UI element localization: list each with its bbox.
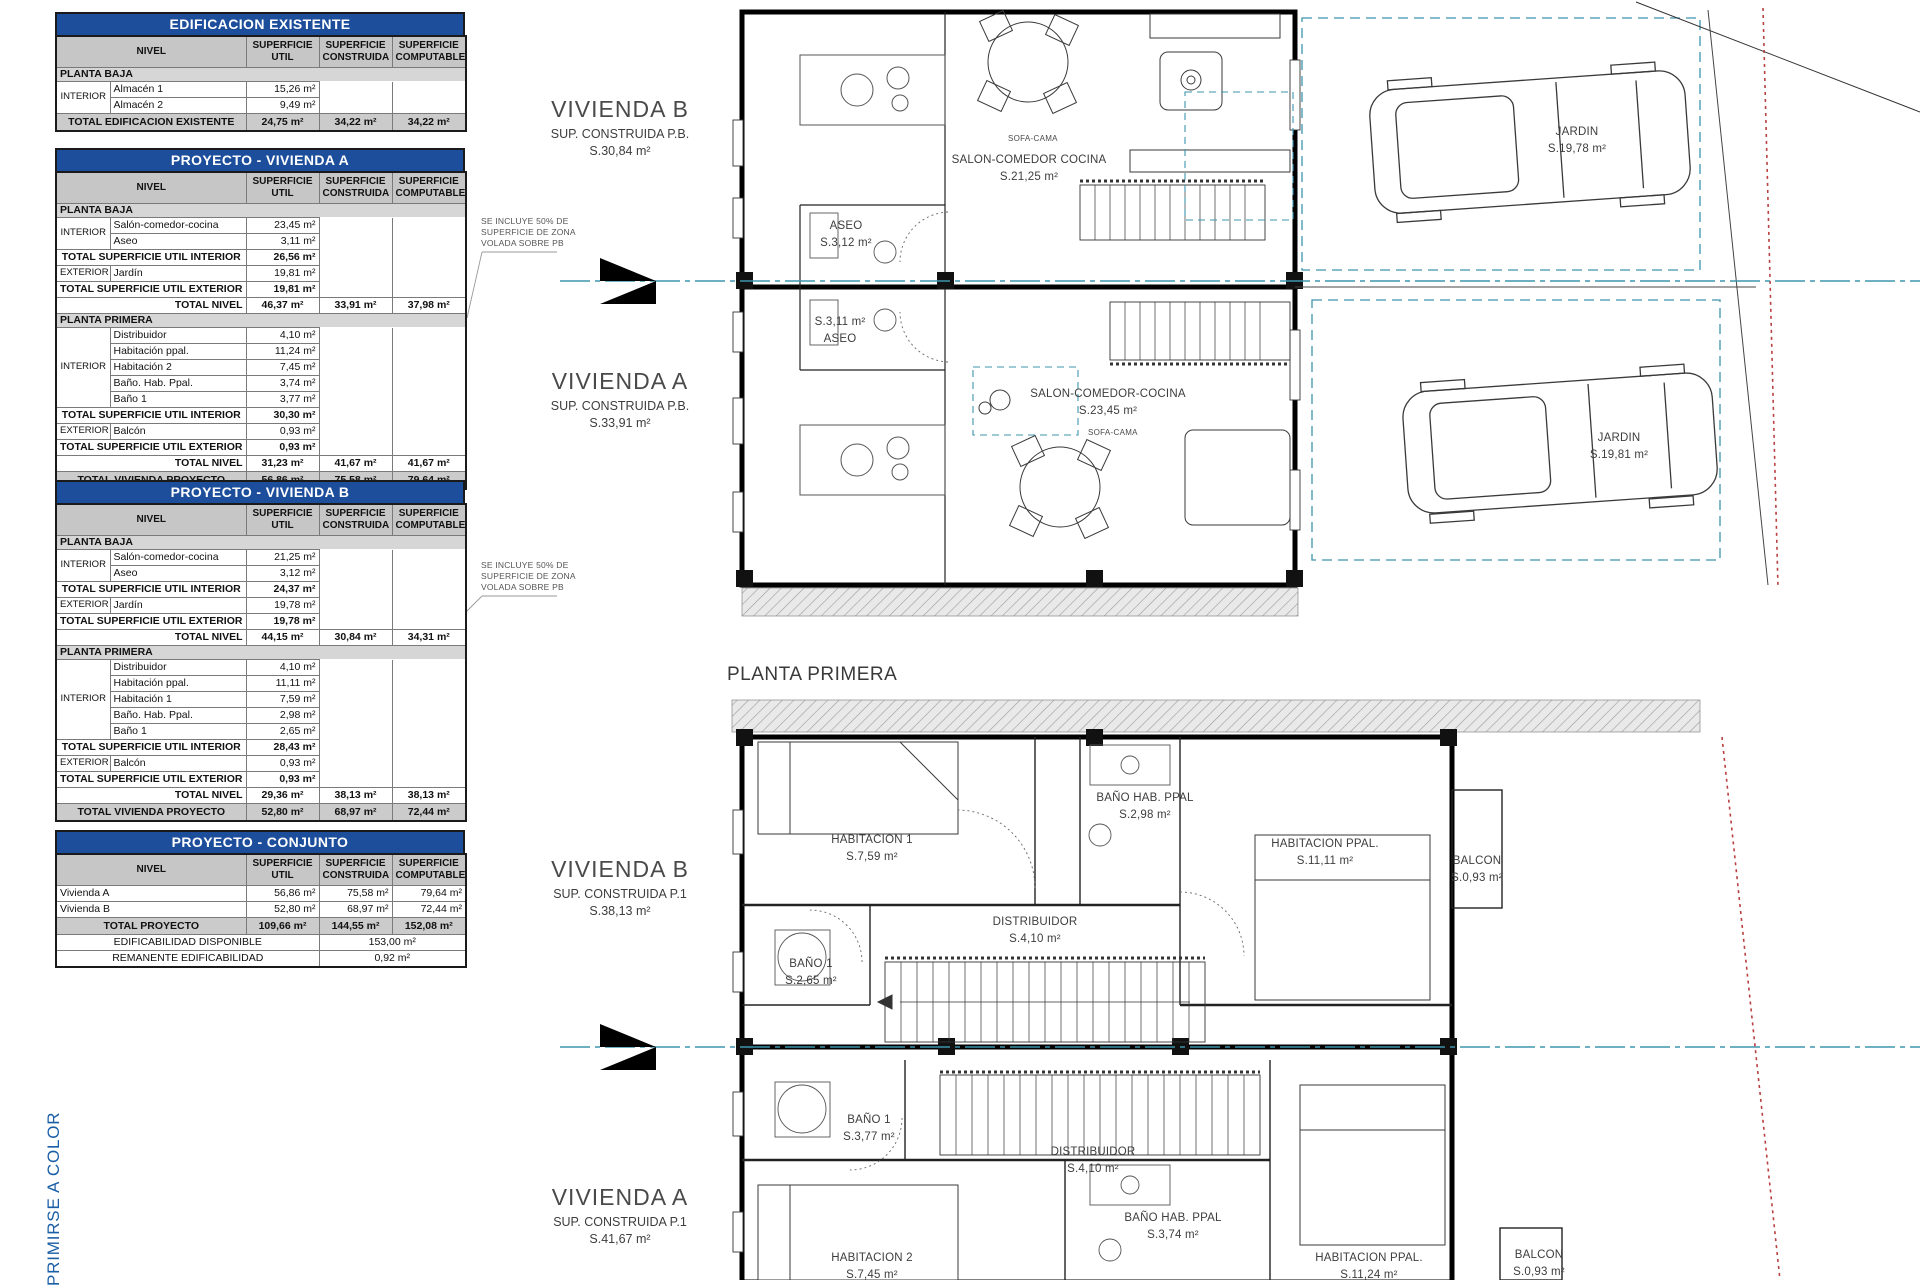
table-cell: 0,93 m²	[246, 424, 319, 440]
table-cell	[392, 250, 466, 266]
table-cell: 9,49 m²	[246, 98, 319, 114]
table-cell: Salón-comedor-cocina	[110, 550, 246, 566]
room-label-banyo-ppal-a: BAÑO HAB. PPALS.3,74 m²	[1073, 1210, 1273, 1245]
table-cell: Jardín	[110, 598, 246, 614]
table-cell: 2,65 m²	[246, 724, 319, 740]
table-cell: 52,80 m²	[246, 804, 319, 822]
table-row: Aseo3,12 m²	[56, 566, 466, 582]
section-cut-mark	[600, 1024, 656, 1070]
table-cell: REMANENTE EDIFICABILIDAD	[56, 951, 319, 968]
table-proyecto-vivienda-a: PROYECTO - VIVIENDA A NIVELSUPERFICIE UT…	[55, 148, 465, 490]
room-label-banyo1-b: BAÑO 1S.2,65 m²	[746, 956, 876, 991]
room-label-balcon-b: BALCONS.0,93 m²	[1422, 853, 1532, 888]
table-cell: PLANTA PRIMERA	[56, 646, 466, 660]
unit-label-vivienda-b-p1: VIVIENDA B SUP. CONSTRUIDA P.1S.38,13 m²	[520, 856, 720, 920]
table-cell: TOTAL SUPERFICIE UTIL INTERIOR	[56, 740, 246, 756]
table-cell	[319, 614, 392, 630]
table-cell: 72,44 m²	[392, 804, 466, 822]
table-cell: 23,45 m²	[246, 218, 319, 234]
table-row: TOTAL SUPERFICIE UTIL INTERIOR30,30 m²	[56, 408, 466, 424]
table-cell	[392, 440, 466, 456]
margin-print-note: PRIMIRSE A COLOR	[44, 956, 64, 1286]
facade-windows	[733, 60, 1300, 532]
note-leader-lines	[466, 252, 557, 612]
table-cell: Balcón	[110, 424, 246, 440]
area-table: NIVELSUPERFICIE UTILSUPERFICIE CONSTRUID…	[55, 35, 467, 132]
table-cell: Balcón	[110, 756, 246, 772]
table-cell	[319, 360, 392, 376]
table-cell: Almacén 2	[110, 98, 246, 114]
table-cell	[392, 408, 466, 424]
room-label-banyo1-a: BAÑO 1S.3,77 m²	[804, 1112, 934, 1147]
table-cell: 24,37 m²	[246, 582, 319, 598]
table-cell: 19,81 m²	[246, 282, 319, 298]
table-cell: 34,22 m²	[392, 114, 466, 132]
table-cell	[392, 376, 466, 392]
table-cell: TOTAL SUPERFICIE UTIL EXTERIOR	[56, 772, 246, 788]
section-cut-mark	[600, 258, 656, 304]
column-header: NIVEL	[56, 36, 246, 68]
table-cell	[319, 250, 392, 266]
table-cell	[319, 756, 392, 772]
table-cell	[392, 266, 466, 282]
table-cell	[392, 724, 466, 740]
table-cell: 68,97 m²	[319, 902, 392, 918]
table-cell: Habitación 1	[110, 692, 246, 708]
table-cell	[319, 98, 392, 114]
table-cell	[319, 550, 392, 566]
table-proyecto-conjunto: PROYECTO - CONJUNTO NIVELSUPERFICIE UTIL…	[55, 830, 465, 968]
area-table: NIVELSUPERFICIE UTILSUPERFICIE CONSTRUID…	[55, 853, 467, 968]
table-cell: TOTAL SUPERFICIE UTIL EXTERIOR	[56, 440, 246, 456]
table-cell: Aseo	[110, 566, 246, 582]
table-row: TOTAL NIVEL31,23 m²41,67 m²41,67 m²	[56, 456, 466, 472]
table-cell: 4,10 m²	[246, 328, 319, 344]
table-row: TOTAL NIVEL29,36 m²38,13 m²38,13 m²	[56, 788, 466, 804]
column-header: SUPERFICIE COMPUTABLE	[392, 854, 466, 886]
table-row: TOTAL NIVEL44,15 m²30,84 m²34,31 m²	[56, 630, 466, 646]
table-cell	[319, 740, 392, 756]
plot-boundary	[1636, 2, 1920, 112]
table-cell	[319, 218, 392, 234]
table-cell: INTERIOR	[56, 218, 110, 250]
table-cell	[392, 234, 466, 250]
table-cell: EXTERIOR	[56, 424, 110, 440]
red-boundary-line	[1763, 8, 1778, 588]
table-row: INTERIORSalón-comedor-cocina21,25 m²	[56, 550, 466, 566]
table-cell: Distribuidor	[110, 660, 246, 676]
column-header: SUPERFICIE UTIL	[246, 854, 319, 886]
column-header: SUPERFICIE UTIL	[246, 36, 319, 68]
table-row: Almacén 29,49 m²	[56, 98, 466, 114]
table-row: TOTAL SUPERFICIE UTIL INTERIOR28,43 m²	[56, 740, 466, 756]
table-cell: 44,15 m²	[246, 630, 319, 646]
sofa-cama-label: SOFA-CAMA	[1008, 134, 1058, 143]
table-cell	[319, 328, 392, 344]
area-table: NIVELSUPERFICIE UTILSUPERFICIE CONSTRUID…	[55, 503, 467, 822]
table-cell	[392, 740, 466, 756]
table-cell: Baño 1	[110, 392, 246, 408]
table-cell: 19,78 m²	[246, 598, 319, 614]
table-cell: 33,91 m²	[319, 298, 392, 314]
table-row: Habitación ppal.11,11 m²	[56, 676, 466, 692]
table-row: TOTAL SUPERFICIE UTIL EXTERIOR0,93 m²	[56, 772, 466, 788]
column-header: SUPERFICIE CONSTRUIDA	[319, 504, 392, 536]
unit-label-vivienda-a-pb: VIVIENDA A SUP. CONSTRUIDA P.B.S.33,91 m…	[520, 368, 720, 432]
table-row: REMANENTE EDIFICABILIDAD0,92 m²	[56, 951, 466, 968]
table-cell: 30,30 m²	[246, 408, 319, 424]
table-title: PROYECTO - CONJUNTO	[55, 830, 465, 853]
stairs-upper	[1080, 181, 1290, 364]
table-row: PLANTA BAJA	[56, 536, 466, 550]
drawing-sheet: { "table_headers": { "nivel": "NIVEL", "…	[0, 0, 1920, 1280]
existing-building-hatch	[732, 700, 1700, 732]
table-cell: Habitación 2	[110, 360, 246, 376]
table-cell: 153,00 m²	[319, 935, 466, 951]
table-cell: 38,13 m²	[319, 788, 392, 804]
table-cell: 26,56 m²	[246, 250, 319, 266]
table-cell	[319, 82, 392, 98]
room-label-balcon-a: BALCONS.0,93 m²	[1484, 1247, 1594, 1282]
table-cell	[319, 708, 392, 724]
table-title: PROYECTO - VIVIENDA A	[55, 148, 465, 171]
table-cell: Aseo	[110, 234, 246, 250]
table-cell: 11,11 m²	[246, 676, 319, 692]
table-cell	[392, 660, 466, 676]
room-label-habitacion1-b: HABITACION 1S.7,59 m²	[772, 832, 972, 867]
table-cell	[319, 234, 392, 250]
table-cell: TOTAL NIVEL	[56, 630, 246, 646]
table-cell	[392, 360, 466, 376]
kitchen-counter	[800, 55, 945, 495]
table-row: TOTAL VIVIENDA PROYECTO52,80 m²68,97 m²7…	[56, 804, 466, 822]
table-cell	[392, 598, 466, 614]
table-cell: 79,64 m²	[392, 886, 466, 902]
table-cell	[319, 392, 392, 408]
table-cell: Distribuidor	[110, 328, 246, 344]
table-cell: 34,31 m²	[392, 630, 466, 646]
table-cell	[319, 582, 392, 598]
table-row: INTERIORDistribuidor4,10 m²	[56, 328, 466, 344]
table-cell: 144,55 m²	[319, 918, 392, 935]
table-cell: 30,84 m²	[319, 630, 392, 646]
table-cell: Baño 1	[110, 724, 246, 740]
table-cell: 37,98 m²	[392, 298, 466, 314]
table-row: PLANTA PRIMERA	[56, 314, 466, 328]
table-cell	[392, 614, 466, 630]
table-row: Habitación 27,45 m²	[56, 360, 466, 376]
table-row: INTERIORDistribuidor4,10 m²	[56, 660, 466, 676]
table-cell: 0,92 m²	[319, 951, 466, 968]
table-cell: 75,58 m²	[319, 886, 392, 902]
sofa-furniture	[979, 14, 1290, 525]
table-row: TOTAL SUPERFICIE UTIL EXTERIOR19,81 m²	[56, 282, 466, 298]
table-cell: 34,22 m²	[319, 114, 392, 132]
column-header: NIVEL	[56, 854, 246, 886]
table-row: Baño 12,65 m²	[56, 724, 466, 740]
room-label-jardin-a: JARDINS.19,81 m²	[1549, 430, 1689, 465]
table-cell: 7,45 m²	[246, 360, 319, 376]
table-row: TOTAL SUPERFICIE UTIL INTERIOR26,56 m²	[56, 250, 466, 266]
table-row: Habitación 17,59 m²	[56, 692, 466, 708]
plan-heading-planta-primera: PLANTA PRIMERA	[727, 664, 897, 686]
note-zona-volada-a: SE INCLUYE 50% DE SUPERFICIE DE ZONA VOL…	[481, 216, 576, 249]
table-row: EXTERIORBalcón0,93 m²	[56, 756, 466, 772]
table-cell: TOTAL EDIFICACION EXISTENTE	[56, 114, 246, 132]
dining-table-icon	[978, 11, 1111, 539]
table-cell: 68,97 m²	[319, 804, 392, 822]
table-cell	[392, 772, 466, 788]
table-cell: 21,25 m²	[246, 550, 319, 566]
table-cell	[319, 344, 392, 360]
table-cell	[392, 550, 466, 566]
table-cell: Habitación ppal.	[110, 344, 246, 360]
room-label-hab-ppal-b: HABITACION PPAL.S.11,11 m²	[1225, 836, 1425, 871]
table-cell: INTERIOR	[56, 328, 110, 408]
table-cell: TOTAL SUPERFICIE UTIL EXTERIOR	[56, 614, 246, 630]
red-boundary-line	[1722, 737, 1780, 1280]
table-row: Baño. Hab. Ppal.3,74 m²	[56, 376, 466, 392]
table-row: TOTAL NIVEL46,37 m²33,91 m²37,98 m²	[56, 298, 466, 314]
table-cell: Habitación ppal.	[110, 676, 246, 692]
column-header: NIVEL	[56, 172, 246, 204]
room-label-banyo-ppal-b: BAÑO HAB. PPALS.2,98 m²	[1045, 790, 1245, 825]
column-header: SUPERFICIE UTIL	[246, 504, 319, 536]
table-cell: 31,23 m²	[246, 456, 319, 472]
room-label-habitacion2-a: HABITACION 2S.7,45 m²	[772, 1250, 972, 1285]
table-row: EXTERIORJardín19,78 m²	[56, 598, 466, 614]
table-cell: TOTAL PROYECTO	[56, 918, 246, 935]
table-cell: 11,24 m²	[246, 344, 319, 360]
table-row: INTERIORSalón-comedor-cocina23,45 m²	[56, 218, 466, 234]
table-proyecto-vivienda-b: PROYECTO - VIVIENDA B NIVELSUPERFICIE UT…	[55, 480, 465, 822]
table-row: INTERIORAlmacén 115,26 m²	[56, 82, 466, 98]
table-row: TOTAL SUPERFICIE UTIL INTERIOR24,37 m²	[56, 582, 466, 598]
table-cell	[392, 676, 466, 692]
table-cell: PLANTA BAJA	[56, 536, 466, 550]
table-cell	[319, 692, 392, 708]
table-cell: INTERIOR	[56, 660, 110, 740]
table-cell	[392, 218, 466, 234]
table-cell	[319, 676, 392, 692]
table-title: PROYECTO - VIVIENDA B	[55, 480, 465, 503]
table-row: PLANTA PRIMERA	[56, 646, 466, 660]
table-cell: TOTAL SUPERFICIE UTIL INTERIOR	[56, 408, 246, 424]
table-cell: 24,75 m²	[246, 114, 319, 132]
table-cell: TOTAL NIVEL	[56, 456, 246, 472]
table-cell: 2,98 m²	[246, 708, 319, 724]
table-cell	[392, 756, 466, 772]
table-cell: Jardín	[110, 266, 246, 282]
table-cell	[319, 408, 392, 424]
table-cell: Vivienda B	[56, 902, 246, 918]
table-row: Habitación ppal.11,24 m²	[56, 344, 466, 360]
table-row: Vivienda B52,80 m²68,97 m²72,44 m²	[56, 902, 466, 918]
table-cell	[392, 708, 466, 724]
note-zona-volada-b: SE INCLUYE 50% DE SUPERFICIE DE ZONA VOL…	[481, 560, 576, 593]
table-row: Aseo3,11 m²	[56, 234, 466, 250]
table-row: Baño. Hab. Ppal.2,98 m²	[56, 708, 466, 724]
table-cell: 46,37 m²	[246, 298, 319, 314]
table-cell: 0,93 m²	[246, 772, 319, 788]
jardin-boundary	[1302, 18, 1720, 560]
table-cell: EXTERIOR	[56, 756, 110, 772]
table-cell: EXTERIOR	[56, 266, 110, 282]
table-cell: 3,77 m²	[246, 392, 319, 408]
table-cell: 28,43 m²	[246, 740, 319, 756]
column-header: SUPERFICIE COMPUTABLE	[392, 172, 466, 204]
table-cell	[319, 566, 392, 582]
column-header: NIVEL	[56, 504, 246, 536]
room-label-salon-b: SALON-COMEDOR COCINAS.21,25 m²	[919, 152, 1139, 187]
column-header: SUPERFICIE COMPUTABLE	[392, 504, 466, 536]
table-row: Baño 13,77 m²	[56, 392, 466, 408]
room-label-hab-ppal-a: HABITACION PPAL.S.11,24 m²	[1269, 1250, 1469, 1285]
table-cell: 19,81 m²	[246, 266, 319, 282]
table-row: TOTAL SUPERFICIE UTIL EXTERIOR0,93 m²	[56, 440, 466, 456]
existing-building-hatch	[742, 588, 1298, 616]
zona-volada-dashed	[973, 92, 1293, 435]
table-row: PLANTA BAJA	[56, 204, 466, 218]
table-cell: 109,66 m²	[246, 918, 319, 935]
table-cell: 41,67 m²	[392, 456, 466, 472]
table-cell	[319, 266, 392, 282]
table-cell	[319, 660, 392, 676]
table-cell	[392, 328, 466, 344]
table-cell	[392, 82, 466, 98]
table-row: EXTERIORJardín19,81 m²	[56, 266, 466, 282]
column-header: SUPERFICIE CONSTRUIDA	[319, 36, 392, 68]
table-cell: PLANTA PRIMERA	[56, 314, 466, 328]
table-cell	[319, 376, 392, 392]
stairs-lower	[878, 958, 1260, 1155]
table-cell: 0,93 m²	[246, 440, 319, 456]
table-cell	[392, 582, 466, 598]
table-cell: 152,08 m²	[392, 918, 466, 935]
table-cell: 0,93 m²	[246, 756, 319, 772]
table-cell	[319, 772, 392, 788]
table-cell: EDIFICABILIDAD DISPONIBLE	[56, 935, 319, 951]
table-row: EDIFICABILIDAD DISPONIBLE153,00 m²	[56, 935, 466, 951]
table-cell: 3,12 m²	[246, 566, 319, 582]
column-header: SUPERFICIE CONSTRUIDA	[319, 854, 392, 886]
table-cell: TOTAL NIVEL	[56, 788, 246, 804]
unit-label-vivienda-b-pb: VIVIENDA B SUP. CONSTRUIDA P.B.S.30,84 m…	[520, 96, 720, 160]
table-cell: TOTAL SUPERFICIE UTIL EXTERIOR	[56, 282, 246, 298]
room-label-salon-a: SALON-COMEDOR-COCINAS.23,45 m²	[998, 386, 1218, 421]
table-cell: 29,36 m²	[246, 788, 319, 804]
table-cell	[319, 424, 392, 440]
table-cell: 15,26 m²	[246, 82, 319, 98]
table-row: TOTAL EDIFICACION EXISTENTE24,75 m²34,22…	[56, 114, 466, 132]
table-row: TOTAL SUPERFICIE UTIL EXTERIOR19,78 m²	[56, 614, 466, 630]
table-cell: EXTERIOR	[56, 598, 110, 614]
table-cell: 56,86 m²	[246, 886, 319, 902]
area-table: NIVELSUPERFICIE UTILSUPERFICIE CONSTRUID…	[55, 171, 467, 490]
table-cell: 72,44 m²	[392, 902, 466, 918]
table-row: PLANTA BAJA	[56, 68, 466, 82]
table-cell	[392, 392, 466, 408]
column-header: SUPERFICIE COMPUTABLE	[392, 36, 466, 68]
table-cell: TOTAL NIVEL	[56, 298, 246, 314]
table-cell	[392, 98, 466, 114]
table-cell: 4,10 m²	[246, 660, 319, 676]
building-outline	[742, 12, 1295, 585]
room-label-distribuidor-a: DISTRIBUIDORS.4,10 m²	[993, 1144, 1193, 1179]
table-cell: PLANTA BAJA	[56, 68, 466, 82]
table-cell: TOTAL VIVIENDA PROYECTO	[56, 804, 246, 822]
table-row: EXTERIORBalcón0,93 m²	[56, 424, 466, 440]
table-cell	[392, 692, 466, 708]
table-cell: INTERIOR	[56, 550, 110, 582]
table-row: Vivienda A56,86 m²75,58 m²79,64 m²	[56, 886, 466, 902]
planta-baja-plan	[560, 2, 1920, 616]
table-cell: 38,13 m²	[392, 788, 466, 804]
table-cell: Almacén 1	[110, 82, 246, 98]
table-cell: 19,78 m²	[246, 614, 319, 630]
table-cell	[392, 566, 466, 582]
table-cell: Vivienda A	[56, 886, 246, 902]
column-header: SUPERFICIE CONSTRUIDA	[319, 172, 392, 204]
table-edificacion-existente: EDIFICACION EXISTENTE NIVELSUPERFICIE UT…	[55, 12, 465, 132]
table-cell	[392, 282, 466, 298]
table-cell: Baño. Hab. Ppal.	[110, 376, 246, 392]
table-cell: Salón-comedor-cocina	[110, 218, 246, 234]
table-cell	[392, 424, 466, 440]
room-label-jardin-b: JARDINS.19,78 m²	[1507, 124, 1647, 159]
table-cell	[319, 598, 392, 614]
table-cell: 3,74 m²	[246, 376, 319, 392]
table-cell: 3,11 m²	[246, 234, 319, 250]
sofa-cama-label: SOFA-CAMA	[1088, 428, 1138, 437]
table-row: TOTAL PROYECTO109,66 m²144,55 m²152,08 m…	[56, 918, 466, 935]
table-cell	[319, 282, 392, 298]
table-cell: TOTAL SUPERFICIE UTIL INTERIOR	[56, 582, 246, 598]
table-cell: 7,59 m²	[246, 692, 319, 708]
column-header: SUPERFICIE UTIL	[246, 172, 319, 204]
room-label-aseo-b: ASEOS.3,12 m²	[796, 218, 896, 253]
table-title: EDIFICACION EXISTENTE	[55, 12, 465, 35]
table-cell: TOTAL SUPERFICIE UTIL INTERIOR	[56, 250, 246, 266]
table-cell: INTERIOR	[56, 82, 110, 114]
table-cell: 41,67 m²	[319, 456, 392, 472]
table-cell	[319, 724, 392, 740]
table-cell: Baño. Hab. Ppal.	[110, 708, 246, 724]
room-label-distribuidor-b: DISTRIBUIDORS.4,10 m²	[935, 914, 1135, 949]
table-cell	[319, 440, 392, 456]
unit-label-vivienda-a-p1: VIVIENDA A SUP. CONSTRUIDA P.1S.41,67 m²	[520, 1184, 720, 1248]
table-cell	[392, 344, 466, 360]
table-cell: 52,80 m²	[246, 902, 319, 918]
table-cell: PLANTA BAJA	[56, 204, 466, 218]
room-label-aseo-a: S.3,11 m²ASEO	[790, 314, 890, 349]
